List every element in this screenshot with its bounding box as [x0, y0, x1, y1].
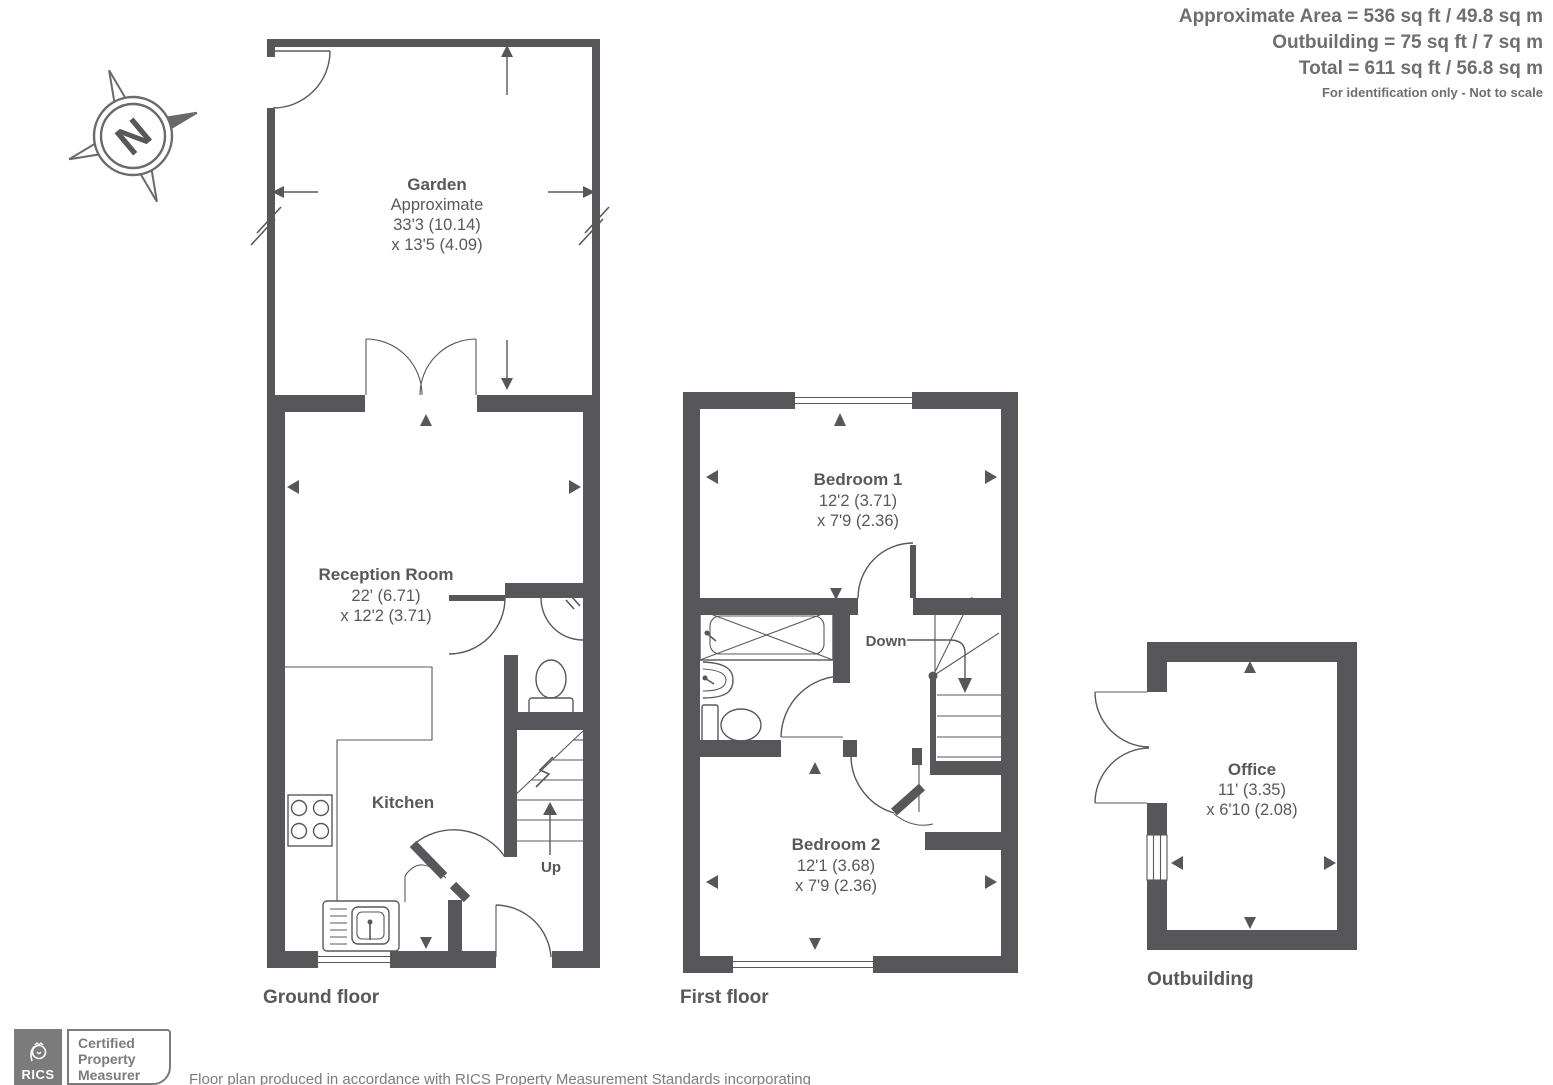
reception-dim-1: 22' (6.71) — [351, 587, 420, 605]
badge-line-1: Certified — [78, 1035, 169, 1051]
outbuilding-plan: Office 11' (3.35) x 6'10 (2.08) Outbuild… — [1095, 642, 1357, 990]
floorplan-canvas: N Garden Approximate — [0, 0, 1553, 1085]
compass-rose-icon: N — [45, 47, 221, 225]
french-doors — [366, 339, 476, 395]
bathroom-door-arc — [781, 676, 843, 737]
floorplan-page: N Garden Approximate — [0, 0, 1553, 1085]
wc-basin — [541, 597, 583, 640]
reception-dim-2: x 12'2 (3.71) — [340, 607, 431, 625]
stairs-down-label: Down — [866, 633, 907, 650]
rics-wordmark: RICS — [21, 1067, 54, 1082]
total-area-line: Total = 611 sq ft / 56.8 sq m — [1179, 56, 1543, 82]
rics-logo: RICS — [14, 1029, 62, 1085]
bedroom2-door-arc — [851, 755, 894, 813]
first-floor-label: First floor — [680, 987, 769, 1008]
rics-lion-icon — [25, 1041, 51, 1067]
garden-approx: Approximate — [391, 196, 484, 214]
footer: RICS Certified Property Measurer Floor p… — [14, 1029, 811, 1085]
garden-label: Garden — [407, 175, 467, 194]
ground-floor-label: Ground floor — [263, 987, 380, 1008]
sink-icon — [323, 901, 399, 951]
office-dim-1: 11' (3.35) — [1218, 781, 1286, 799]
reception-label: Reception Room — [318, 565, 453, 584]
garden-plan: Garden Approximate 33'3 (10.14) x 13'5 (… — [251, 39, 609, 395]
badge-line-2: Property — [78, 1051, 169, 1067]
outbuilding-window — [1147, 835, 1167, 880]
office-dim-2: x 6'10 (2.08) — [1206, 801, 1297, 819]
bedroom1-dim-1: 12'2 (3.71) — [819, 492, 897, 510]
outbuilding-double-doors — [1095, 692, 1149, 803]
area-summary: Approximate Area = 536 sq ft / 49.8 sq m… — [1179, 4, 1543, 104]
disclaimer-text: Floor plan produced in accordance with R… — [189, 1029, 811, 1085]
bedroom2-dimension-arrows — [706, 762, 997, 950]
wc-toilet — [529, 660, 573, 715]
bathtub-icon — [700, 610, 833, 660]
garden-gate-arc — [273, 51, 330, 108]
kitchen-label: Kitchen — [372, 793, 434, 812]
bathroom-sink-icon — [703, 662, 734, 698]
front-door-arc — [496, 905, 551, 957]
stove-icon — [288, 795, 332, 846]
badge-line-3: Measurer — [78, 1067, 169, 1083]
first-floor-plan: Down — [680, 392, 1018, 1008]
bedroom2-label: Bedroom 2 — [792, 835, 881, 854]
bedroom1-window — [795, 392, 912, 409]
bedroom1-label: Bedroom 1 — [814, 470, 903, 489]
ground-floor-plan: Up Reception Room 22' (6.71) x 12'2 (3.7… — [263, 339, 600, 1008]
kitchen-counter — [285, 667, 432, 901]
stairs-up-label: Up — [541, 859, 561, 876]
bedroom2-dim-2: x 7'9 (2.36) — [795, 877, 877, 895]
garden-dim-2: x 13'5 (4.09) — [391, 236, 482, 254]
wc-door-arc — [449, 598, 505, 654]
bedroom2-dim-1: 12'1 (3.68) — [797, 857, 875, 875]
outbuilding-label: Outbuilding — [1147, 969, 1254, 990]
office-label: Office — [1228, 760, 1276, 779]
stairs-up — [508, 731, 583, 855]
disclaimer-line-1: Floor plan produced in accordance with R… — [189, 1070, 811, 1085]
garden-dim-1: 33'3 (10.14) — [393, 216, 481, 234]
outbuilding-area-line: Outbuilding = 75 sq ft / 7 sq m — [1179, 30, 1543, 56]
bathroom-toilet-icon — [702, 705, 761, 745]
stairs-down — [907, 597, 1001, 761]
approximate-area-line: Approximate Area = 536 sq ft / 49.8 sq m — [1179, 4, 1543, 30]
bedroom2-window — [733, 956, 873, 973]
certified-measurer-badge: Certified Property Measurer — [67, 1029, 171, 1085]
bedroom1-dim-2: x 7'9 (2.36) — [817, 512, 899, 530]
identification-note: For identification only - Not to scale — [1179, 82, 1543, 104]
kitchen-window — [318, 951, 390, 968]
bedroom1-door-arc — [858, 543, 913, 598]
